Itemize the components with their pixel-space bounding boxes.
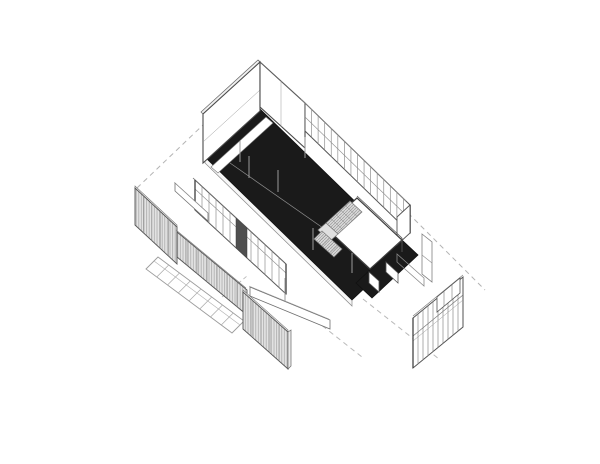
- brick-wall-s-endcap: [288, 330, 291, 369]
- axonometric-figure: [0, 0, 600, 464]
- glass-wall-sw-darkpane: [236, 218, 247, 258]
- brick-wall-nw-tall: [135, 188, 177, 264]
- building-shapes: [135, 60, 485, 369]
- glass-pane-upright-rail: [422, 255, 432, 263]
- dashed-guide-e: [408, 213, 485, 290]
- axonometric-drawing: [0, 0, 600, 464]
- glass-pane-upright: [422, 234, 432, 282]
